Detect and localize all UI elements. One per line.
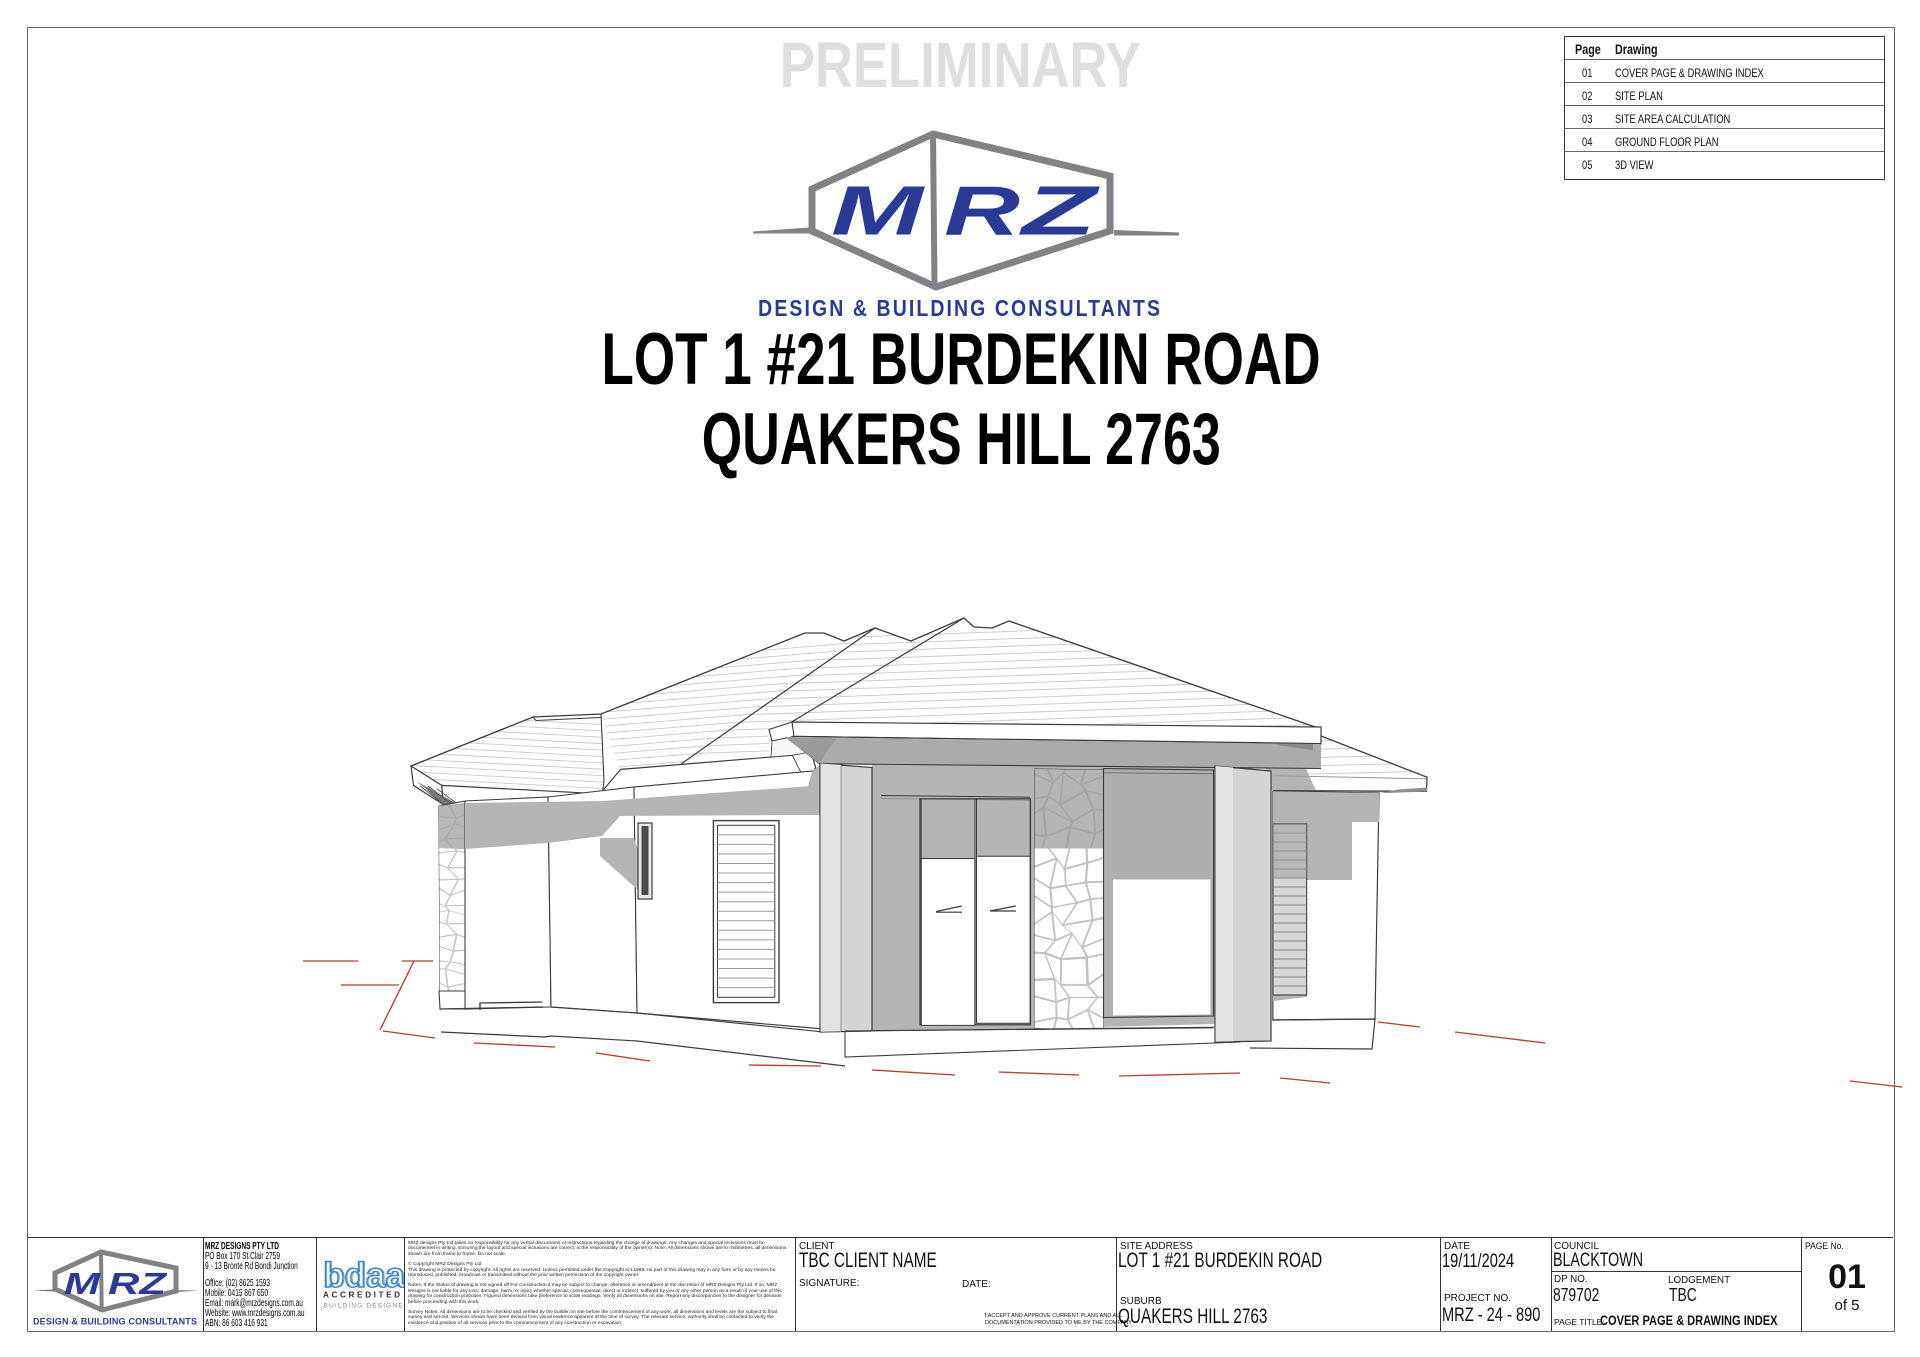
- svg-text:M: M: [64, 1266, 102, 1301]
- svg-text:BUILDING DESIGNER: BUILDING DESIGNER: [324, 1303, 405, 1310]
- svg-text:M: M: [831, 172, 926, 250]
- svg-text:Z: Z: [1019, 172, 1100, 250]
- svg-text:DESIGN & BUILDING CONSULTANTS: DESIGN & BUILDING CONSULTANTS: [33, 1317, 197, 1327]
- svg-text:bdaa: bdaa: [324, 1256, 404, 1295]
- svg-text:R: R: [944, 172, 1021, 250]
- svg-text:ACCREDITED: ACCREDITED: [323, 1291, 403, 1300]
- svg-text:RZ: RZ: [108, 1266, 167, 1301]
